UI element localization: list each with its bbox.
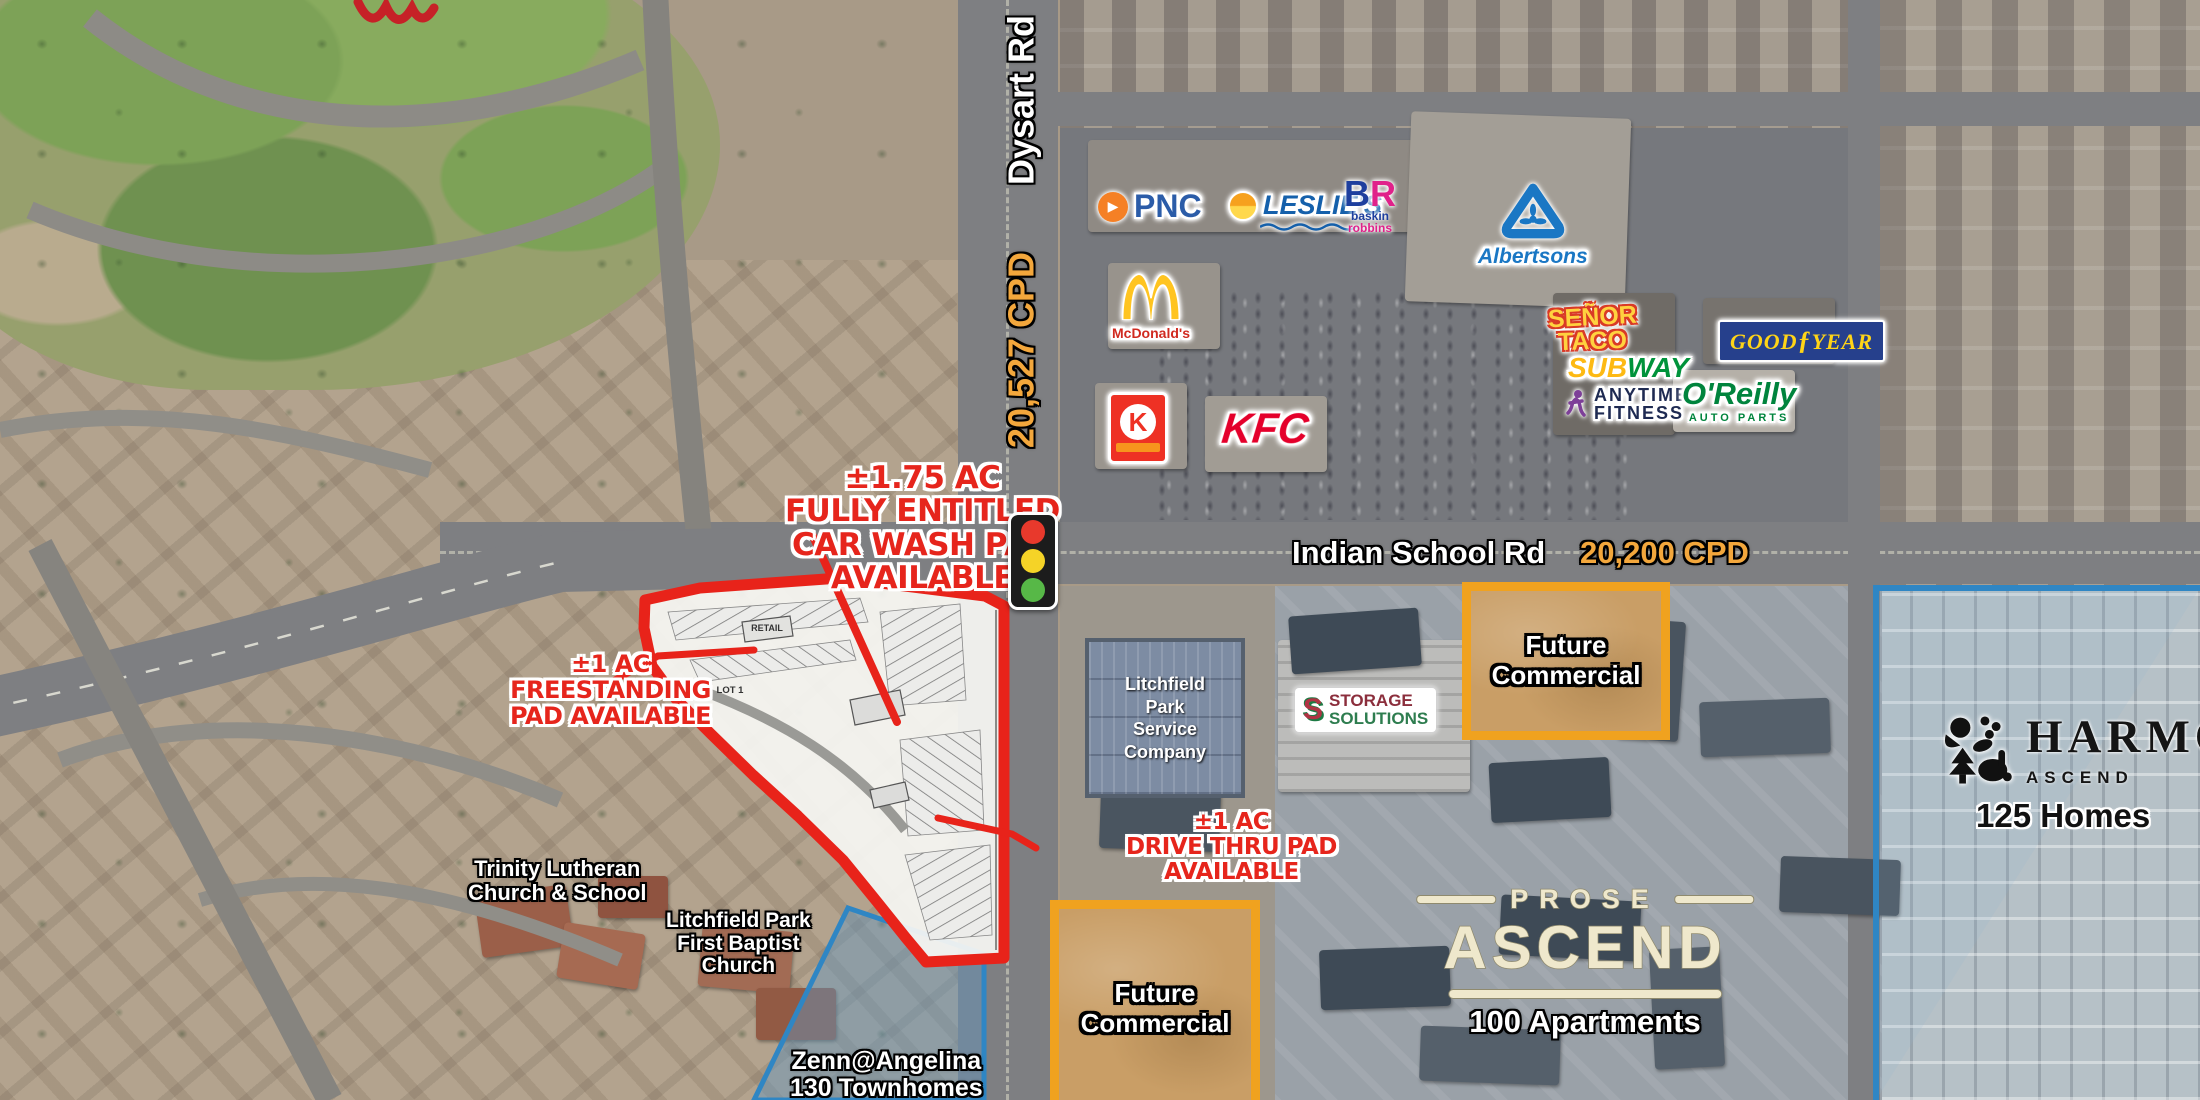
albertsons-logo: Albertsons <box>1478 182 1588 269</box>
prose-dash-right <box>1674 895 1754 904</box>
freestanding-line-3: PAD AVAILABLE <box>510 704 711 730</box>
baskin-b: B <box>1344 173 1370 214</box>
freestanding-line-1: ±1 AC <box>510 652 711 678</box>
street-residential-1 <box>0 418 430 470</box>
prose-ascend-logo: PROSE ASCEND 100 Apartments <box>1416 885 1754 1038</box>
car-wash-line-1: ±1.75 AC <box>785 462 1060 495</box>
storage-solutions-logo: S STORAGE SOLUTIONS <box>1295 688 1436 732</box>
baptist-line-1: Litchfield Park <box>666 910 811 933</box>
road-label-dysart: Dysart Rd <box>1003 15 1042 185</box>
service-co-line-3: Service <box>1124 718 1206 741</box>
road-label-indian-school: Indian School Rd <box>1292 536 1545 569</box>
subway-logo: SUBWAY <box>1568 352 1689 384</box>
ascend-underline-bar <box>1448 989 1722 999</box>
baptist-line-2: First Baptist <box>666 933 811 956</box>
storage-s-icon: S <box>1303 695 1323 725</box>
service-co-line-2: Park <box>1124 696 1206 719</box>
aerial-site-map: RETAIL LOT 1 Dysart Rd 20,527 CPD Indian… <box>0 0 2200 1100</box>
mcdonalds-logo: McDonald's <box>1112 272 1190 341</box>
circle-k-orange-bar <box>1116 443 1160 452</box>
service-co-line-1: Litchfield <box>1124 673 1206 696</box>
street-golf-north <box>90 18 640 117</box>
baskin-r: R <box>1370 173 1396 214</box>
drive-thru-line-1: ±1 AC <box>1126 810 1337 835</box>
traffic-count-dysart: 20,527 CPD <box>1003 252 1042 448</box>
trinity-line-2: Church & School <box>468 881 646 905</box>
service-co-line-4: Company <box>1124 741 1206 764</box>
label-125-homes: 125 Homes <box>1976 798 2200 834</box>
mcdonalds-arches-icon <box>1120 272 1182 320</box>
traffic-count-indian-school: 20,200 CPD <box>1580 536 1749 569</box>
future-commercial-north-box: Future Commercial <box>1462 582 1670 740</box>
site-parking-row-3 <box>880 604 966 706</box>
subway-way: WAY <box>1627 352 1689 383</box>
annotation-freestanding-pad: ±1 AC FREESTANDING PAD AVAILABLE <box>510 652 711 730</box>
label-service-company: Litchfield Park Service Company <box>1124 673 1206 763</box>
traffic-light-green <box>1021 578 1045 602</box>
label-future-commercial-north: Future Commercial <box>1492 631 1641 691</box>
cropped-logo-fragment <box>358 2 434 20</box>
storage-word-2: SOLUTIONS <box>1329 710 1428 728</box>
site-lot1-label: LOT 1 <box>717 685 745 696</box>
building-service-company: Litchfield Park Service Company <box>1085 638 1245 798</box>
senor-taco-logo: SEÑOR TACO <box>1548 306 1637 354</box>
drive-thru-line-2: DRIVE THRU PAD <box>1126 835 1337 860</box>
harmony-wordmark: HARMONY <box>2026 712 2200 763</box>
ascend-wordmark: ASCEND <box>1416 916 1754 981</box>
oreilly-sub: AUTO PARTS <box>1682 412 1796 424</box>
oreilly-logo: O'Reilly AUTO PARTS <box>1682 376 1796 424</box>
baskin-word-2: robbins <box>1344 222 1396 234</box>
wingfoot-icon: ƒ <box>1798 326 1812 355</box>
traffic-light-red <box>1021 520 1045 544</box>
pnc-arrow-icon: ▶ <box>1098 192 1128 222</box>
label-future-commercial-south: Future Commercial <box>1081 979 1230 1039</box>
label-trinity-lutheran: Trinity Lutheran Church & School <box>468 857 646 905</box>
baptist-line-3: Church <box>666 955 811 978</box>
future-south-line-1: Future <box>1081 979 1230 1009</box>
traffic-light-icon <box>1008 512 1058 610</box>
drive-thru-line-3: AVAILABLE <box>1126 860 1337 885</box>
albertsons-wordmark: Albertsons <box>1478 245 1588 269</box>
prose-brand: PROSE <box>1510 885 1660 914</box>
harmony-logo-block: HARMONY ASCEND 125 Homes <box>1940 712 2200 834</box>
oreilly-wordmark: O'Reilly <box>1682 376 1796 412</box>
label-100-apartments: 100 Apartments <box>1416 1005 1754 1038</box>
pnc-logo: ▶ PNC <box>1098 188 1202 225</box>
harmony-crest-icon <box>1940 712 2012 788</box>
future-north-line-1: Future <box>1492 631 1641 661</box>
goodyear-logo: GOODƒYEAR <box>1718 320 1885 362</box>
trinity-line-1: Trinity Lutheran <box>468 857 646 881</box>
zenn-line-2: 130 Townhomes <box>790 1075 983 1100</box>
subway-sub: SUB <box>1568 352 1627 383</box>
label-zenn-angelina: Zenn@Angelina 130 Townhomes <box>790 1048 983 1100</box>
future-south-line-2: Commercial <box>1081 1009 1230 1039</box>
anytime-line-2: FITNESS <box>1594 404 1689 422</box>
future-commercial-south-box: Future Commercial <box>1050 900 1260 1100</box>
storage-word-1: STORAGE <box>1329 692 1428 710</box>
traffic-light-yellow <box>1021 549 1045 573</box>
goodyear-year: YEAR <box>1812 329 1873 354</box>
prose-brand-row: PROSE <box>1416 885 1754 914</box>
leslies-sun-icon <box>1228 191 1258 221</box>
annotation-drive-thru-pad: ±1 AC DRIVE THRU PAD AVAILABLE <box>1126 810 1337 884</box>
prose-dash-left <box>1416 895 1496 904</box>
prose-ascend-wordmark: PROSE ASCEND <box>1416 885 1754 999</box>
baskin-robbins-logo: BR baskin robbins <box>1344 178 1396 234</box>
street-golf-south <box>30 170 660 264</box>
albertsons-monogram-icon <box>1500 182 1566 240</box>
anytime-line-1: ANYTIME <box>1594 386 1689 404</box>
mcdonalds-wordmark: McDonald's <box>1112 325 1190 341</box>
circle-k-letter: K <box>1120 404 1156 440</box>
runner-icon <box>1562 389 1590 419</box>
label-first-baptist: Litchfield Park First Baptist Church <box>666 910 811 978</box>
future-north-line-2: Commercial <box>1492 661 1641 691</box>
parcel-harmony-outline <box>1876 588 2200 1100</box>
goodyear-good: GOOD <box>1730 329 1798 354</box>
circle-k-logo: K <box>1108 392 1168 464</box>
harmony-sub-wordmark: ASCEND <box>2026 769 2200 787</box>
kfc-logo: KFC <box>1219 405 1310 453</box>
street-north-connector <box>655 0 700 545</box>
pnc-wordmark: PNC <box>1134 188 1202 225</box>
anytime-fitness-logo: ANYTIME FITNESS <box>1562 386 1689 422</box>
site-retail-label: RETAIL <box>751 623 783 633</box>
zenn-line-1: Zenn@Angelina <box>790 1048 983 1075</box>
freestanding-line-2: FREESTANDING <box>510 678 711 704</box>
